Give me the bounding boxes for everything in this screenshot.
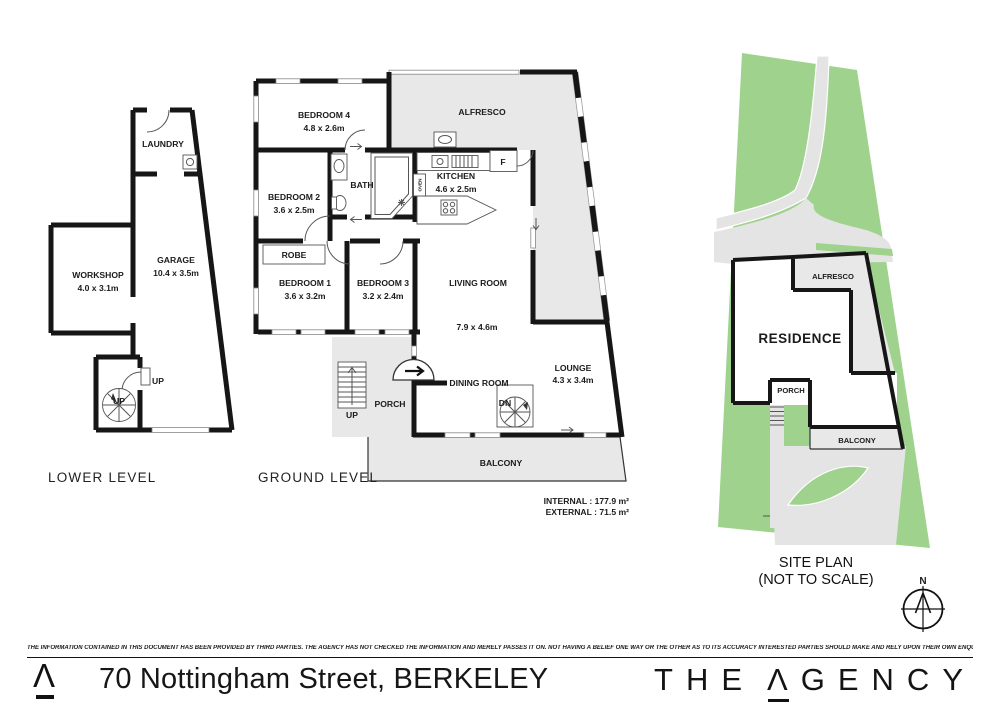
bath-label: BATH — [350, 180, 373, 190]
compass-north-label: N — [919, 576, 926, 587]
bedroom3-label: BEDROOM 3 — [357, 278, 409, 288]
lower-level-title: LOWER LEVEL — [48, 470, 157, 485]
bedroom3-door-arc — [380, 241, 403, 264]
site-porch-label: PORCH — [777, 386, 804, 395]
balcony-label: BALCONY — [480, 458, 523, 468]
fridge-label: F — [500, 157, 505, 167]
lounge-dims: 4.3 x 3.4m — [552, 375, 593, 385]
laundry-door-arc — [147, 110, 169, 132]
ground-up-label: UP — [346, 410, 358, 420]
compass-icon: N — [901, 576, 945, 632]
ground-level-title: GROUND LEVEL — [258, 470, 378, 485]
bbq-icon — [434, 132, 456, 147]
bath-south-door-arrow — [351, 217, 363, 223]
dining-label: DINING ROOM — [449, 378, 508, 388]
porch-stairs-icon — [338, 362, 366, 408]
lower-up-stair-label: UP — [113, 396, 125, 406]
garage-dims: 10.4 x 3.5m — [153, 268, 199, 278]
workshop-dims: 4.0 x 3.1m — [77, 283, 118, 293]
site-plan: ALFRESCO RESIDENCE PORCH BALCONY SITE PL… — [714, 53, 945, 632]
floorplan-canvas: LAUNDRY GARAGE 10.4 x 3.5m WORKSHOP 4.0 … — [0, 0, 1000, 642]
garage-label: GARAGE — [157, 255, 195, 265]
workshop-label: WORKSHOP — [72, 270, 124, 280]
site-alfresco-label: ALFRESCO — [812, 272, 854, 281]
balcony-door-arrow — [561, 427, 573, 433]
site-lower-terrace — [771, 446, 906, 545]
bedroom2-dims: 3.6 x 2.5m — [273, 205, 314, 215]
garage-door-opening — [152, 428, 209, 433]
bedroom1-dims: 3.6 x 3.2m — [284, 291, 325, 301]
brand-gap — [755, 662, 767, 698]
site-stair-path — [770, 403, 784, 528]
bedroom3-dims: 3.2 x 2.4m — [362, 291, 403, 301]
bedroom4-dims: 4.8 x 2.6m — [303, 123, 344, 133]
agency-wordmark: THE Λ GENCY — [654, 662, 976, 698]
washing-machine-icon — [183, 155, 197, 169]
bedroom1-label: BEDROOM 1 — [279, 278, 331, 288]
alfresco-screen — [389, 70, 519, 74]
stair-door — [141, 368, 150, 385]
robe-label: ROBE — [282, 250, 307, 260]
site-residence-label: RESIDENCE — [758, 331, 841, 346]
bedroom2-door-arc — [305, 216, 330, 241]
bedroom4-label: BEDROOM 4 — [298, 110, 350, 120]
logo-caret: Λ — [33, 659, 55, 692]
living-label: LIVING ROOM — [449, 278, 507, 288]
logo-underscore — [36, 695, 54, 699]
property-address: 70 Nottingham Street, BERKELEY — [99, 663, 548, 696]
alfresco-label: ALFRESCO — [458, 107, 506, 117]
agency-logo-mark-icon: Λ — [33, 659, 55, 699]
lower-up-label: UP — [152, 376, 164, 386]
disclaimer-text: THE INFORMATION CONTAINED IN THIS DOCUME… — [27, 645, 973, 651]
laundry-label: LAUNDRY — [142, 139, 184, 149]
floorplan-page: LAUNDRY GARAGE 10.4 x 3.5m WORKSHOP 4.0 … — [0, 0, 1000, 722]
internal-area-label: INTERNAL : 177.9 m² — [544, 496, 629, 506]
site-balcony-label: BALCONY — [838, 436, 876, 445]
brand-a-caret: Λ — [767, 662, 801, 698]
site-plan-subtitle: (NOT TO SCALE) — [758, 572, 873, 588]
porch-label: PORCH — [374, 399, 405, 409]
site-plan-title: SITE PLAN — [779, 555, 853, 571]
lower-level-plan: LAUNDRY GARAGE 10.4 x 3.5m WORKSHOP 4.0 … — [48, 110, 232, 485]
brand-gency: GENCY — [801, 662, 976, 698]
lounge-label: LOUNGE — [555, 363, 592, 373]
living-dims: 7.9 x 4.6m — [456, 322, 497, 332]
dn-label: DN — [499, 398, 511, 408]
bedroom2-label: BEDROOM 2 — [268, 192, 320, 202]
kitchen-label: KITCHEN — [437, 171, 475, 181]
brand-the: THE — [654, 662, 755, 698]
brand-a-underscore — [768, 699, 789, 702]
external-area-label: EXTERNAL : 71.5 m² — [546, 507, 630, 517]
footer-divider — [27, 657, 973, 658]
oven-label: OVEN — [418, 178, 423, 192]
bath-north-door-arrow — [350, 144, 362, 150]
kitchen-dims: 4.6 x 2.5m — [435, 184, 476, 194]
ground-level-plan: BEDROOM 4 4.8 x 2.6m ALFRESCO BEDROOM 2 … — [254, 70, 629, 517]
